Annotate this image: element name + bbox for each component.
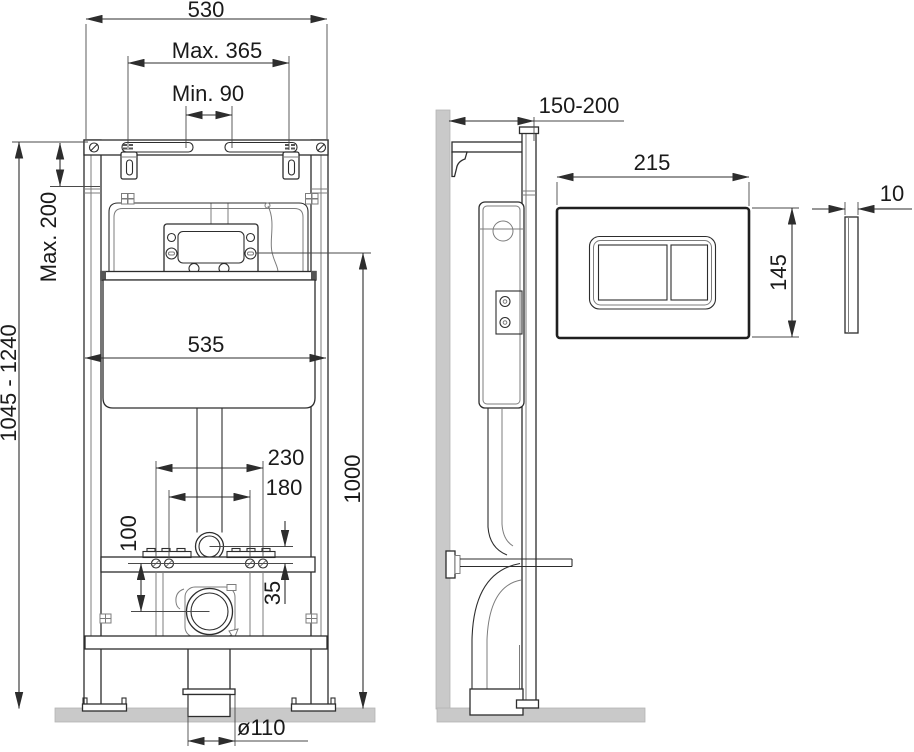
flush-pipe-side: [488, 408, 513, 555]
wc-fixing-rod-side: [446, 551, 572, 578]
mounting-bracket-left: [121, 152, 137, 179]
wc-fixing-bracket-right: [227, 549, 275, 558]
wall-bracket: [452, 142, 530, 177]
dim-plate-height-label: 145: [766, 254, 791, 291]
technical-drawing-page: 530 Max. 365 Min. 90 1045 - 1240 Max. 20…: [0, 0, 914, 752]
dim-fixing-inner-label: 180: [266, 475, 303, 500]
dim-outlet-dia-label: ø110: [237, 715, 286, 740]
dim-panel-height-label: 1000: [340, 455, 365, 504]
dim-plate-width-label: 215: [634, 150, 671, 175]
flush-plate-profile: [845, 217, 858, 333]
dim-fixing-outer-label: 230: [268, 445, 305, 470]
dim-bracket-max-label: Max. 365: [172, 38, 263, 63]
installation-drawing: 530 Max. 365 Min. 90 1045 - 1240 Max. 20…: [0, 0, 914, 752]
dim-cistern-width-label: 535: [188, 332, 225, 357]
rail-foot-side: [517, 700, 539, 708]
dim-top-extension-label: Max. 200: [36, 192, 61, 283]
frame-leg-left: [84, 140, 101, 705]
bottom-rail: [85, 636, 327, 649]
dim-frame-width-label: 530: [188, 0, 225, 22]
cistern-outline: [109, 203, 308, 272]
cistern-shelf: [101, 272, 316, 281]
dim-bracket-min-label: Min. 90: [172, 81, 244, 106]
fill-hose: [265, 203, 278, 272]
wall-side-view: [436, 110, 450, 709]
wc-fixing-bracket-left: [143, 549, 191, 558]
drain-bend-side: [470, 564, 523, 716]
dim-height-range-label: 1045 - 1240: [0, 324, 21, 441]
cross-rail: [101, 557, 315, 572]
surfaces: [55, 110, 645, 722]
flush-plate-side-view: [845, 217, 858, 333]
dim-plate-thickness-label: 10: [880, 181, 904, 206]
dim-pipe-rail-label: 35: [260, 581, 285, 605]
cistern-side: [479, 202, 524, 408]
dim-rail-outlet-label: 100: [116, 515, 141, 552]
flush-plate-front-view: [557, 208, 749, 338]
drain-pipe: [183, 649, 235, 717]
cistern-top-clips: [122, 194, 319, 205]
floor-side-view: [437, 708, 645, 722]
dim-wall-offset-label: 150-200: [539, 93, 620, 118]
side-view: [446, 127, 572, 715]
mounting-bracket-right: [283, 152, 299, 179]
front-view: [83, 140, 336, 717]
flush-plate-body: [557, 208, 749, 338]
